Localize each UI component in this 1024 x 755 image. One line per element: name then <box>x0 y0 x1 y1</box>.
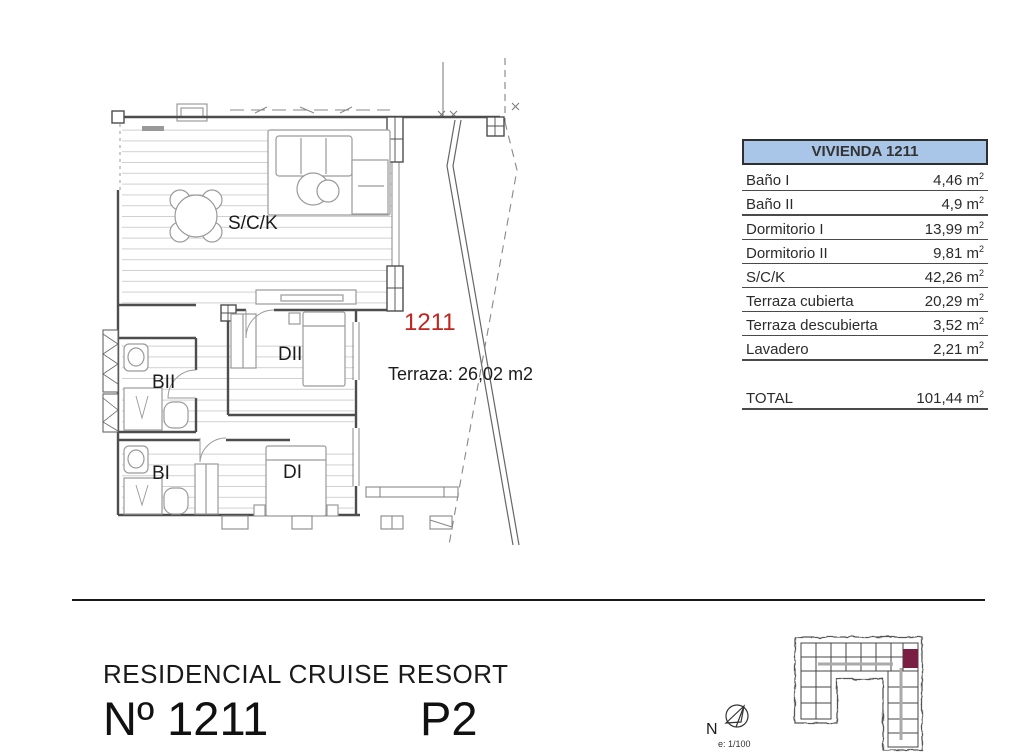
table-row: Baño II 4,9 m2 <box>742 191 988 216</box>
area-table: VIVIENDA 1211 Baño I 4,46 m2 Baño II 4,9… <box>742 139 988 410</box>
row-value: 42,26 m2 <box>925 269 984 286</box>
total-value: 101,44 m2 <box>916 390 984 407</box>
row-label: Terraza cubierta <box>746 293 854 310</box>
table-row: Terraza cubierta 20,29 m2 <box>742 288 988 312</box>
room-label-di: DI <box>283 462 302 483</box>
unit-number: Nº 1211 <box>103 691 268 746</box>
ventilation-shaft <box>103 330 118 432</box>
total-label: TOTAL <box>746 390 793 407</box>
table-row: Terraza descubierta 3,52 m2 <box>742 312 988 336</box>
terrace-area-label: Terraza: 26,02 m2 <box>388 364 533 384</box>
row-value: 2,21 m2 <box>933 341 984 358</box>
title-divider-line <box>72 599 985 601</box>
row-label: Baño II <box>746 196 794 213</box>
row-label: Terraza descubierta <box>746 317 878 334</box>
north-arrow-icon <box>726 705 748 727</box>
pergola-dashed-edge <box>177 104 390 121</box>
project-title: RESIDENCIAL CRUISE RESORT <box>103 659 508 690</box>
row-label: Dormitorio II <box>746 245 828 262</box>
room-label-bi: BI <box>152 463 170 484</box>
row-value: 4,9 m2 <box>941 196 984 213</box>
room-label-sck: S/C/K <box>228 213 278 234</box>
sofa-set <box>268 130 390 215</box>
floorplan-sheet: { "plan": { "labels": { "living": "S/C/K… <box>0 0 1024 755</box>
row-value: 9,81 m2 <box>933 245 984 262</box>
floor-number: P2 <box>420 691 478 746</box>
row-value: 13,99 m2 <box>925 221 984 238</box>
dining-table <box>170 190 222 242</box>
area-table-title: VIVIENDA 1211 <box>742 139 988 165</box>
room-label-dii: DII <box>278 344 302 365</box>
kitchen-counter <box>256 290 356 304</box>
table-row: S/C/K 42,26 m2 <box>742 264 988 288</box>
table-row: Lavadero 2,21 m2 <box>742 336 988 361</box>
north-label: N <box>706 721 718 738</box>
table-total-row: TOTAL 101,44 m2 <box>742 385 988 410</box>
terrace-boundary-lines <box>447 120 519 545</box>
scale-label: e: 1/100 <box>718 739 751 749</box>
row-label: Baño I <box>746 172 789 189</box>
table-row: Dormitorio I 13,99 m2 <box>742 216 988 240</box>
row-value: 20,29 m2 <box>925 293 984 310</box>
room-label-bii: BII <box>152 372 175 393</box>
highlighted-unit <box>903 649 918 668</box>
row-value: 4,46 m2 <box>933 172 984 189</box>
table-row: Baño I 4,46 m2 <box>742 167 988 191</box>
row-label: Dormitorio I <box>746 221 824 238</box>
row-label: Lavadero <box>746 341 809 358</box>
table-row: Dormitorio II 9,81 m2 <box>742 240 988 264</box>
row-value: 3,52 m2 <box>933 317 984 334</box>
site-key-plan <box>795 637 922 750</box>
unit-number-label: 1211 <box>404 309 456 336</box>
reference-lines <box>438 58 519 122</box>
row-label: S/C/K <box>746 269 785 286</box>
